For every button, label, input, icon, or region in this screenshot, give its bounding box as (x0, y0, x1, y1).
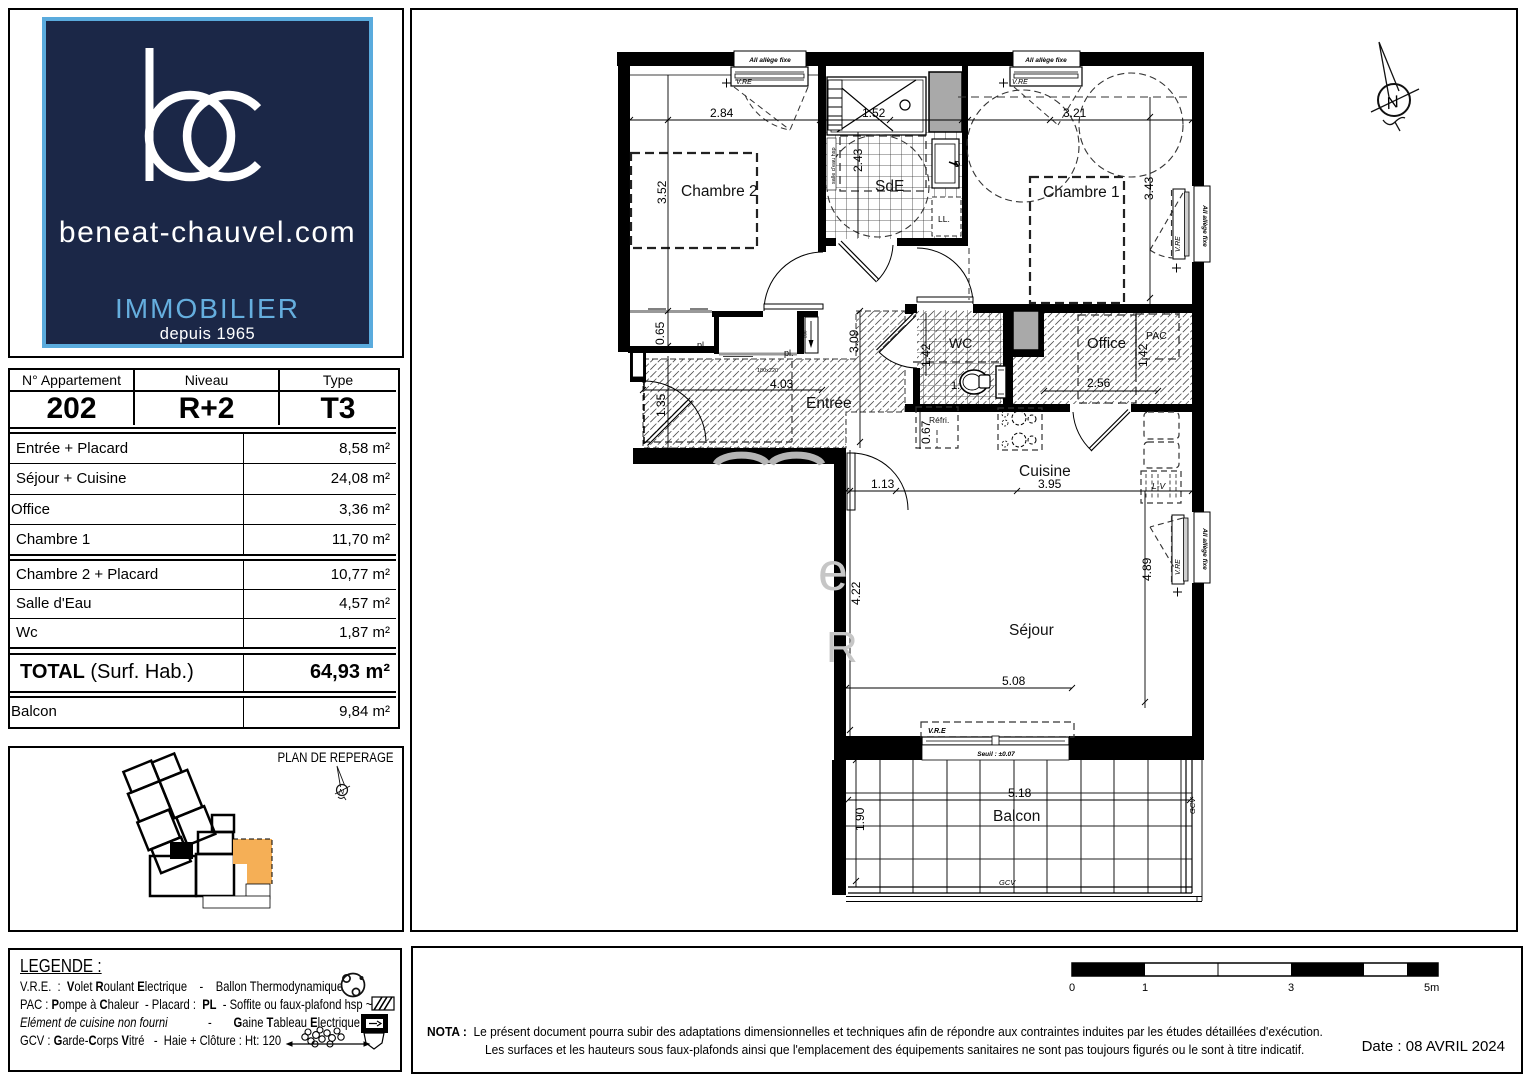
svg-text:4.22: 4.22 (849, 581, 863, 605)
svg-text:Entrée: Entrée (806, 395, 852, 412)
svg-text:V.RE: V.RE (1175, 559, 1182, 575)
svg-text:R: R (826, 623, 858, 672)
svg-text:180x220: 180x220 (757, 368, 778, 374)
svg-text:All allège fixe: All allège fixe (1201, 204, 1208, 247)
svg-text:280: 280 (803, 330, 808, 338)
svg-text:1.35: 1.35 (654, 393, 668, 417)
svg-text:pl.: pl. (784, 348, 794, 358)
svg-text:3: 3 (1288, 982, 1294, 994)
svg-text:Séjour: Séjour (1009, 622, 1054, 639)
svg-text:1: 1 (1142, 982, 1148, 994)
svg-text:GCV: GCV (1188, 797, 1197, 814)
svg-text:All allège fixe: All allège fixe (1201, 527, 1208, 570)
svg-text:3.52: 3.52 (655, 180, 669, 204)
svg-text:1.90: 1.90 (853, 807, 867, 831)
svg-text:Balcon: Balcon (993, 808, 1040, 825)
svg-text:1.13: 1.13 (871, 477, 895, 491)
svg-text:All allège fixe: All allège fixe (1024, 57, 1067, 64)
svg-text:3.09: 3.09 (847, 329, 861, 353)
svg-text:5.08: 5.08 (1002, 674, 1026, 688)
svg-text:Réfri.: Réfri. (929, 415, 949, 425)
svg-text:Chambre 2: Chambre 2 (681, 183, 758, 200)
svg-text:V.RE: V.RE (736, 79, 752, 86)
svg-text:4.03: 4.03 (770, 377, 794, 391)
svg-text:0: 0 (1069, 982, 1075, 994)
svg-text:3.21: 3.21 (1063, 106, 1087, 120)
svg-text:Cuisine: Cuisine (1019, 463, 1071, 480)
svg-text:V.RE: V.RE (1012, 79, 1028, 86)
svg-text:4.89: 4.89 (1140, 557, 1154, 581)
svg-text:SdE: SdE (875, 178, 904, 195)
svg-text:V.RE: V.RE (1175, 236, 1182, 252)
svg-text:3.43: 3.43 (1142, 176, 1156, 200)
svg-text:pl.: pl. (697, 340, 707, 350)
svg-text:0.65: 0.65 (653, 321, 667, 345)
svg-text:GCV: GCV (999, 878, 1016, 887)
svg-text:LL.: LL. (938, 214, 950, 224)
svg-text:N: N (1384, 92, 1401, 113)
svg-text:Chambre 1: Chambre 1 (1043, 184, 1120, 201)
svg-text:PAC: PAC (1146, 330, 1167, 342)
svg-text:V.R.E: V.R.E (928, 728, 946, 735)
svg-text:All allège fixe: All allège fixe (748, 57, 791, 64)
svg-text:5m: 5m (1424, 982, 1439, 994)
svg-text:Office: Office (1087, 335, 1126, 352)
svg-text:WC: WC (949, 335, 972, 351)
svg-text:L-V: L-V (1152, 481, 1167, 491)
svg-text:5.18: 5.18 (1008, 786, 1032, 800)
svg-text:2.56: 2.56 (1087, 376, 1111, 390)
svg-text:2.84: 2.84 (710, 106, 734, 120)
svg-text:1.52: 1.52 (862, 106, 886, 120)
svg-text:e: e (818, 542, 848, 602)
svg-text:1.42: 1.42 (919, 343, 933, 367)
svg-text:Seuil : ±0.07: Seuil : ±0.07 (977, 751, 1015, 758)
svg-text:salle d'eau hsp: salle d'eau hsp (831, 147, 837, 184)
svg-text:2.43: 2.43 (851, 148, 865, 172)
svg-text:1.42: 1.42 (1136, 343, 1150, 367)
